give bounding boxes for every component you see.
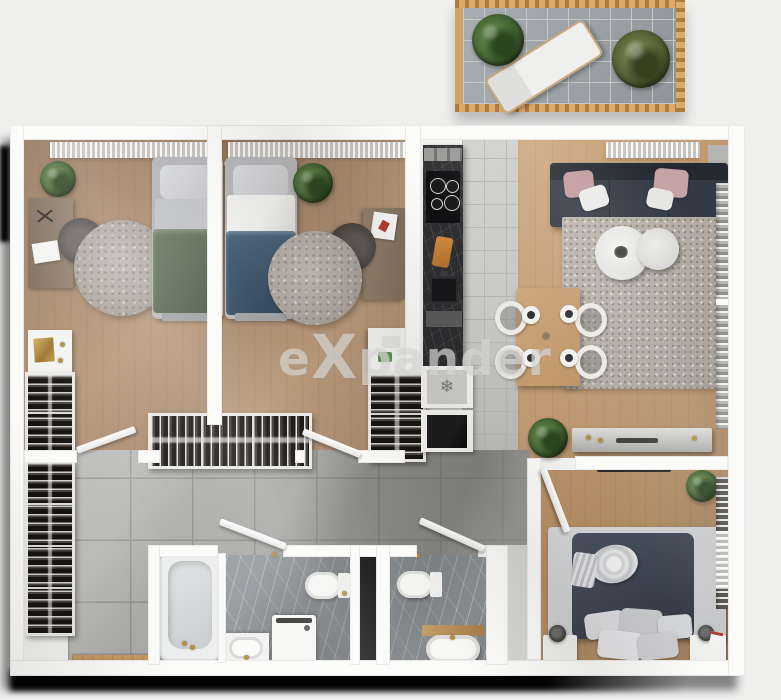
toilet-tank	[430, 572, 442, 597]
watermark-x: X	[311, 323, 358, 393]
bedroom2-plant-icon	[293, 163, 333, 203]
toilet-bowl	[305, 572, 341, 599]
wall-shaft-left	[350, 545, 360, 665]
sink-tap-icon	[450, 635, 455, 640]
bedroom1-plant-icon	[40, 161, 76, 197]
bathtub-faucet-icon	[182, 641, 187, 646]
living-window-blinds	[606, 142, 700, 158]
floor-plan-render: { "watermark": { "prefix": "e", "x": "X"…	[0, 0, 781, 700]
apartment: ❄	[10, 125, 745, 676]
burner	[430, 178, 446, 194]
towel-hook-icon	[272, 552, 277, 557]
balcony-plant-right-icon	[612, 30, 670, 88]
balcony-frame-right	[676, 0, 685, 112]
desk-papers-red	[370, 211, 397, 240]
balcony-plant-left-icon	[472, 14, 524, 66]
towel-hook-icon	[342, 591, 347, 596]
place-setting	[560, 305, 578, 323]
place-setting	[560, 349, 578, 367]
desk-lamp-icon	[37, 210, 53, 222]
oven-glass	[427, 415, 467, 448]
toilet-bowl	[397, 571, 433, 598]
gold-trinket	[60, 342, 65, 347]
cooktop	[426, 171, 460, 223]
toilet-2	[397, 571, 442, 598]
gold-artwork	[33, 337, 55, 362]
bathtub-faucet-icon	[190, 645, 195, 650]
wall-bed2-bottom-a	[295, 450, 305, 463]
decor-dark	[616, 438, 658, 443]
decor-gold	[692, 436, 697, 441]
bedroom2-rug	[268, 231, 362, 325]
sofa-throw-white	[645, 187, 675, 212]
coffee-table-small	[637, 228, 679, 270]
balcony-frame-top	[455, 0, 685, 8]
balcony	[455, 0, 685, 112]
washer-slot	[276, 618, 312, 623]
wall-bed1-bottom-b	[138, 450, 160, 463]
kitchen-appliance-squares	[424, 148, 462, 161]
bathroom2-vanity	[420, 625, 486, 663]
red-mark	[378, 220, 390, 233]
bed-foot	[162, 313, 212, 321]
burner	[431, 198, 443, 210]
bedroom3-plant-icon	[686, 470, 718, 502]
bed-pillow	[160, 165, 214, 199]
watermark-prefix: e	[278, 332, 311, 387]
wall-top	[10, 125, 745, 140]
wall-right	[728, 125, 745, 676]
burner	[444, 195, 460, 211]
shaft-dark	[358, 551, 378, 665]
desk-papers	[32, 240, 61, 264]
lamp-left-icon	[549, 625, 566, 642]
kitchen-sink	[430, 277, 458, 303]
oven	[421, 410, 473, 452]
living-plant-icon	[528, 418, 568, 458]
wall-bed1-bottom-a	[24, 450, 77, 463]
bed-pillow	[233, 165, 288, 199]
hallway-wardrobe-top	[148, 413, 312, 469]
decor-gold	[598, 438, 603, 443]
dining-chair	[575, 303, 607, 337]
wall-left	[10, 125, 24, 676]
wall-bed2-bottom-b	[358, 450, 405, 463]
hallway-wardrobe-left	[25, 460, 75, 636]
bedroom1-open-wardrobe	[25, 372, 75, 458]
decor-gold	[586, 435, 591, 440]
bed3-pillow	[597, 629, 644, 661]
wall-bath2-right	[486, 545, 508, 665]
washing-machine	[272, 615, 316, 663]
burner	[446, 180, 459, 193]
bedroom1-shelf	[28, 330, 72, 372]
sink-faucet-icon	[440, 271, 448, 276]
bathtub-basin	[168, 561, 212, 649]
gold-trinket	[58, 358, 63, 363]
watermark-suffix: pander	[358, 332, 552, 387]
sideboard	[572, 428, 712, 452]
wall-shaft-right	[376, 545, 390, 665]
washer-dial-icon	[304, 625, 310, 631]
bathroom1-vanity	[223, 633, 269, 663]
throw-drape	[570, 551, 598, 588]
table-centerpiece	[614, 246, 628, 258]
balcony-frame-bottom	[455, 104, 685, 112]
bathtub	[160, 553, 220, 661]
dining-chair	[575, 345, 607, 379]
wall-tub-divider	[218, 553, 226, 663]
wall-bath-left	[148, 545, 160, 665]
wall-bed3-left	[527, 458, 541, 660]
wall-living-bed3	[575, 456, 728, 470]
wall-bed1-bed2	[207, 125, 222, 425]
watermark: eXpander	[278, 320, 552, 390]
bed3-pillow	[637, 631, 680, 662]
